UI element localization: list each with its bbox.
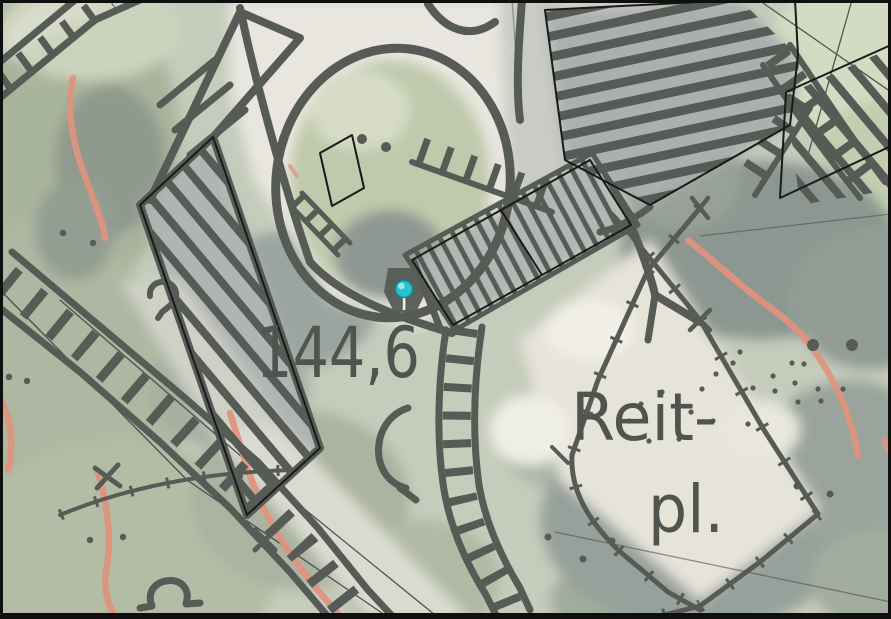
road-edge xyxy=(518,0,522,120)
map-viewport[interactable]: 144,6 Reit- pl. xyxy=(0,0,891,619)
reitplatz-label-line1: Reit- xyxy=(571,379,717,456)
reitplatz-label-line2: pl. xyxy=(648,471,724,548)
map-canvas[interactable]: 144,6 Reit- pl. xyxy=(0,0,891,619)
elevation-label: 144,6 xyxy=(256,312,420,394)
